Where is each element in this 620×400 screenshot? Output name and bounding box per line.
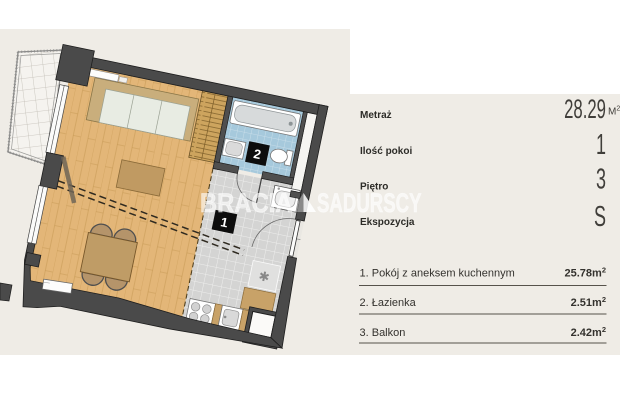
svg-text:25.78m2: 25.78m2 xyxy=(565,266,606,280)
svg-text:3. Balkon: 3. Balkon xyxy=(360,327,406,339)
svg-text:Metraż: Metraż xyxy=(360,110,392,121)
svg-text:2. Łazienka: 2. Łazienka xyxy=(360,297,417,309)
svg-text:3: 3 xyxy=(596,163,606,195)
svg-text:2.51m2: 2.51m2 xyxy=(571,295,606,309)
svg-text:S: S xyxy=(594,201,606,233)
svg-text:28.29: 28.29 xyxy=(564,94,606,124)
svg-text:1. Pokój z aneksem kuchennym: 1. Pokój z aneksem kuchennym xyxy=(360,268,515,280)
svg-text:BRACIA: BRACIA xyxy=(200,189,292,219)
svg-text:Ekspozycja: Ekspozycja xyxy=(360,217,415,228)
svg-text:Ilość pokoi: Ilość pokoi xyxy=(360,146,412,157)
svg-text:2.42m2: 2.42m2 xyxy=(571,325,606,339)
svg-text:Piętro: Piętro xyxy=(360,182,388,193)
svg-text:1: 1 xyxy=(596,129,606,161)
